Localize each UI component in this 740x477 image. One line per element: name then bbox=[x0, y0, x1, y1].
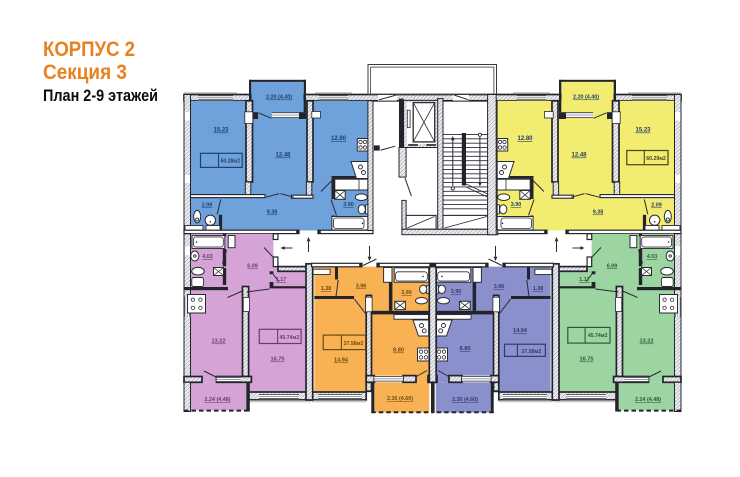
svg-text:3.96: 3.96 bbox=[494, 284, 505, 290]
svg-text:37.58м2: 37.58м2 bbox=[522, 349, 542, 355]
svg-text:3.90: 3.90 bbox=[511, 202, 522, 208]
svg-text:12.48: 12.48 bbox=[275, 153, 291, 159]
svg-text:1.17: 1.17 bbox=[276, 277, 287, 283]
svg-text:6.09: 6.09 bbox=[247, 264, 258, 270]
svg-text:1.17: 1.17 bbox=[579, 277, 590, 283]
svg-text:12.80: 12.80 bbox=[517, 136, 533, 142]
svg-text:2.24 (4.48): 2.24 (4.48) bbox=[204, 397, 230, 403]
svg-text:2.30 (4.60): 2.30 (4.60) bbox=[387, 396, 413, 402]
svg-text:16.75: 16.75 bbox=[580, 357, 594, 363]
svg-text:9.38: 9.38 bbox=[267, 210, 278, 216]
svg-text:3.90: 3.90 bbox=[451, 289, 462, 295]
svg-text:9.38: 9.38 bbox=[593, 210, 604, 216]
svg-text:15.23: 15.23 bbox=[635, 128, 651, 134]
svg-text:13.22: 13.22 bbox=[212, 339, 226, 345]
svg-text:2.20 (4.40): 2.20 (4.40) bbox=[573, 95, 599, 101]
svg-text:37.58м2: 37.58м2 bbox=[344, 341, 364, 347]
svg-text:13.22: 13.22 bbox=[640, 339, 654, 345]
svg-text:8.80: 8.80 bbox=[460, 346, 471, 352]
svg-text:12.48: 12.48 bbox=[571, 153, 587, 159]
svg-text:Секция 3: Секция 3 bbox=[43, 61, 127, 84]
svg-text:6.09: 6.09 bbox=[607, 264, 618, 270]
svg-text:КОРПУС 2: КОРПУС 2 bbox=[43, 38, 135, 61]
svg-text:15.23: 15.23 bbox=[213, 128, 229, 134]
svg-text:2.30 (4.60): 2.30 (4.60) bbox=[452, 397, 478, 403]
svg-text:План 2-9 этажей: План 2-9 этажей bbox=[43, 87, 158, 105]
svg-text:3.96: 3.96 bbox=[356, 284, 367, 290]
svg-text:45.74м2: 45.74м2 bbox=[588, 333, 608, 339]
svg-text:4.03: 4.03 bbox=[202, 254, 213, 260]
svg-text:14.94: 14.94 bbox=[334, 358, 349, 364]
svg-text:2.09: 2.09 bbox=[202, 203, 213, 209]
svg-text:1.38: 1.38 bbox=[321, 286, 332, 292]
svg-text:16.75: 16.75 bbox=[271, 357, 285, 363]
svg-text:2.20 (4.40): 2.20 (4.40) bbox=[266, 95, 292, 101]
svg-text:1.38: 1.38 bbox=[533, 286, 544, 292]
svg-text:4.03: 4.03 bbox=[647, 254, 658, 260]
svg-text:8.80: 8.80 bbox=[393, 348, 404, 354]
svg-text:2.24 (4.48): 2.24 (4.48) bbox=[635, 397, 661, 403]
svg-text:12.80: 12.80 bbox=[331, 136, 347, 142]
svg-text:3.90: 3.90 bbox=[401, 290, 412, 296]
svg-text:3.90: 3.90 bbox=[343, 202, 354, 208]
svg-text:14.94: 14.94 bbox=[513, 328, 528, 334]
svg-text:60.29м2: 60.29м2 bbox=[646, 156, 666, 162]
svg-text:45.74м2: 45.74м2 bbox=[280, 335, 300, 341]
svg-text:2.09: 2.09 bbox=[651, 203, 662, 209]
svg-text:60.28м2: 60.28м2 bbox=[220, 158, 240, 164]
